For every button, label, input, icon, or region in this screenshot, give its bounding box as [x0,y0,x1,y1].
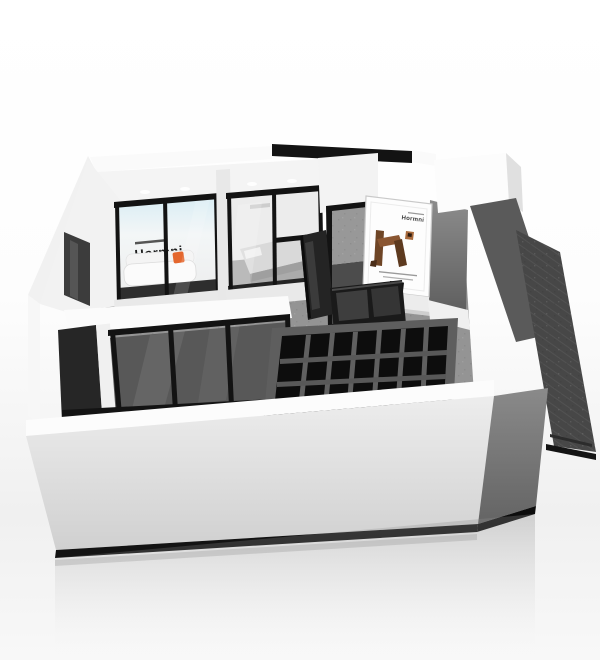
case-glass-pane [336,290,369,321]
left-wall-face [28,295,40,424]
ceiling-spotlight [180,187,190,191]
poster-back-wall [428,200,468,312]
building: Hormni [26,144,596,660]
case-glass-pane [371,286,401,317]
ceiling-spotlight [140,190,150,194]
ceiling-spotlight [247,182,257,186]
h-collage-speck [370,260,377,267]
ceiling-spotlight [287,179,297,183]
left-wall-opening-highlight [70,240,78,300]
showroom-3d-render: Hormni [0,0,600,660]
glass-room-dark-opening [58,325,102,422]
sofa-room: Hormni [114,193,221,318]
corridor-upper-wall-texture [332,207,367,265]
h-collage-chip-shadow [408,233,413,237]
